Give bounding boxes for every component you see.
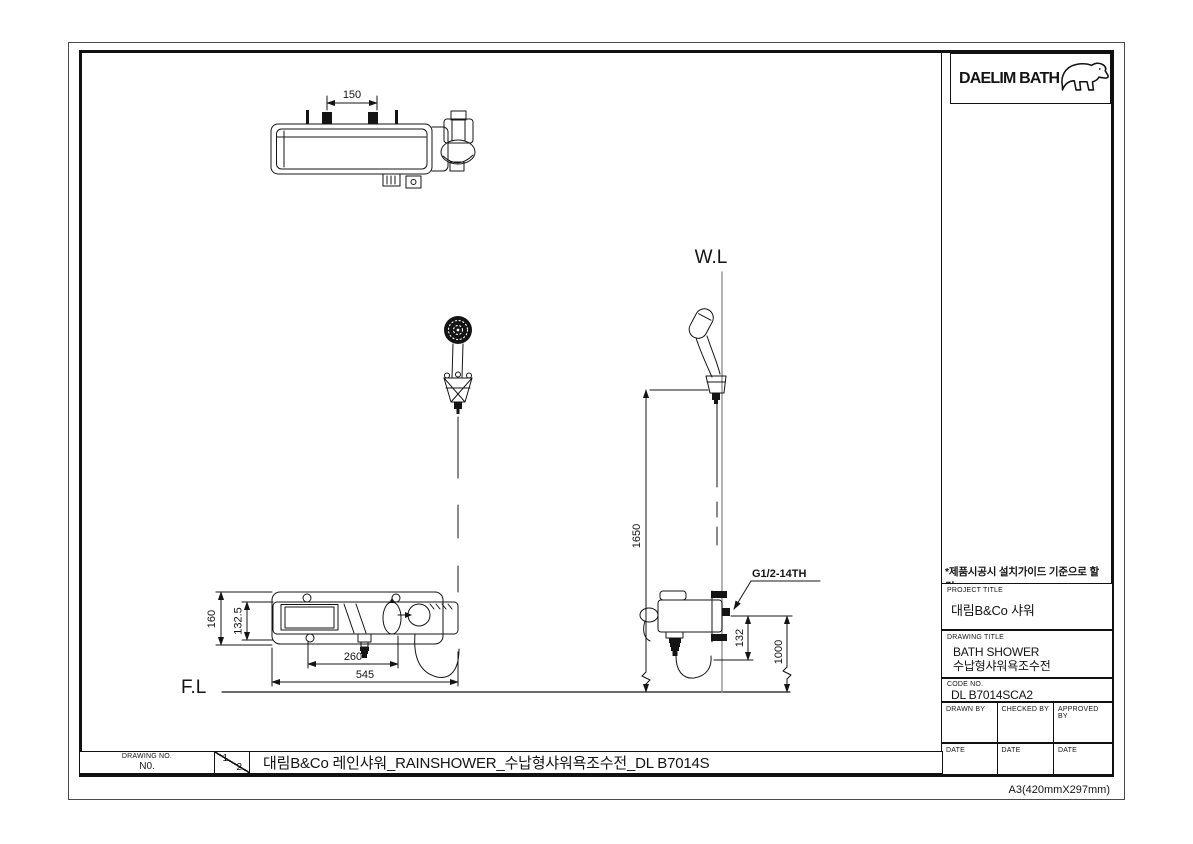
code-no-box: CODE NO. DL B7014SCA2: [941, 678, 1113, 702]
checked-by-label: CHECKED BY: [1002, 706, 1050, 713]
footer-title-cell: 대림B&Co 레인샤워_RAINSHOWER_수납형샤워욕조수전_DL B701…: [249, 751, 943, 774]
drawn-date-cell: DATE: [941, 743, 998, 775]
drawing-title-box: DRAWING TITLE BATH SHOWER 수납형샤워욕조수전: [941, 630, 1113, 678]
checked-date-cell: DATE: [997, 743, 1055, 775]
side-view: W.L: [631, 247, 820, 692]
dim-132-label: 132: [734, 629, 746, 647]
date-label-2: DATE: [1002, 747, 1050, 754]
project-title-box: PROJECT TITLE 대림B&Co 샤워: [941, 583, 1113, 630]
dim-260-label: 260: [344, 651, 362, 663]
front-view-unit: [272, 592, 459, 677]
top-view-unit: [271, 110, 475, 188]
date-label-1: DATE: [946, 747, 993, 754]
side-view-unit: [640, 591, 730, 678]
approved-date-cell: DATE: [1053, 743, 1113, 775]
drawing-title-label: DRAWING TITLE: [947, 634, 1107, 641]
logo-box: DAELIM BATH: [950, 53, 1111, 104]
cad-sheet: 150: [0, 0, 1193, 844]
dim-front-inner-width: 260: [308, 636, 398, 668]
drawn-by-label: DRAWN BY: [946, 706, 993, 713]
drawing-title-line1: BATH SHOWER: [953, 645, 1107, 659]
project-title-value: 대림B&Co 샤워: [951, 600, 1107, 619]
approved-by-label: APPROVED BY: [1058, 706, 1108, 720]
sheet-number-cell: 1 2: [214, 751, 251, 774]
drawing-no-label: DRAWING NO.: [122, 753, 172, 760]
dim-545-label: 545: [356, 669, 374, 681]
dim-side-outlet-height: 1000: [773, 616, 791, 692]
dim-side-shower-height: 1650: [631, 390, 708, 692]
front-view-hand-shower: [444, 316, 472, 592]
dim-top-inlet-spacing: 150: [327, 89, 377, 110]
drawing-no-cell: DRAWING NO. N0.: [79, 751, 215, 774]
code-no-label: CODE NO.: [947, 681, 1107, 688]
drawn-by-cell: DRAWN BY: [941, 702, 998, 743]
code-no-value: DL B7014SCA2: [951, 688, 1107, 702]
drawing-no-value: N0.: [139, 761, 155, 772]
drawing-title-line2: 수납형샤워욕조수전: [953, 659, 1107, 673]
paper-size-label: A3(420mmX297mm): [990, 784, 1110, 796]
checked-by-cell: CHECKED BY: [997, 702, 1055, 743]
thread-callout: G1/2-14TH: [734, 568, 820, 609]
footer-title-text: 대림B&Co 레인샤워_RAINSHOWER_수납형샤워욕조수전_DL B701…: [263, 752, 709, 773]
wl-label: W.L: [695, 247, 728, 268]
project-title-label: PROJECT TITLE: [947, 587, 1107, 594]
fl-label: F.L: [181, 677, 206, 698]
sheet-current: 1: [223, 753, 229, 764]
side-view-hand-shower: [686, 306, 726, 545]
dim-132-5-label: 132.5: [233, 607, 245, 635]
dim-front-body-height: 132.5: [233, 602, 274, 640]
polar-bear-icon: [1057, 57, 1110, 101]
thread-label: G1/2-14TH: [752, 568, 806, 580]
approved-by-cell: APPROVED BY: [1053, 702, 1113, 743]
sheet-total: 2: [237, 762, 243, 773]
dim-160-label: 160: [206, 610, 218, 628]
dim-1000-label: 1000: [773, 640, 785, 664]
date-label-3: DATE: [1058, 747, 1108, 754]
dim-1650-label: 1650: [631, 524, 643, 548]
dim-150-label: 150: [343, 89, 361, 101]
brand-logo-text: DAELIM BATH: [959, 70, 1059, 88]
